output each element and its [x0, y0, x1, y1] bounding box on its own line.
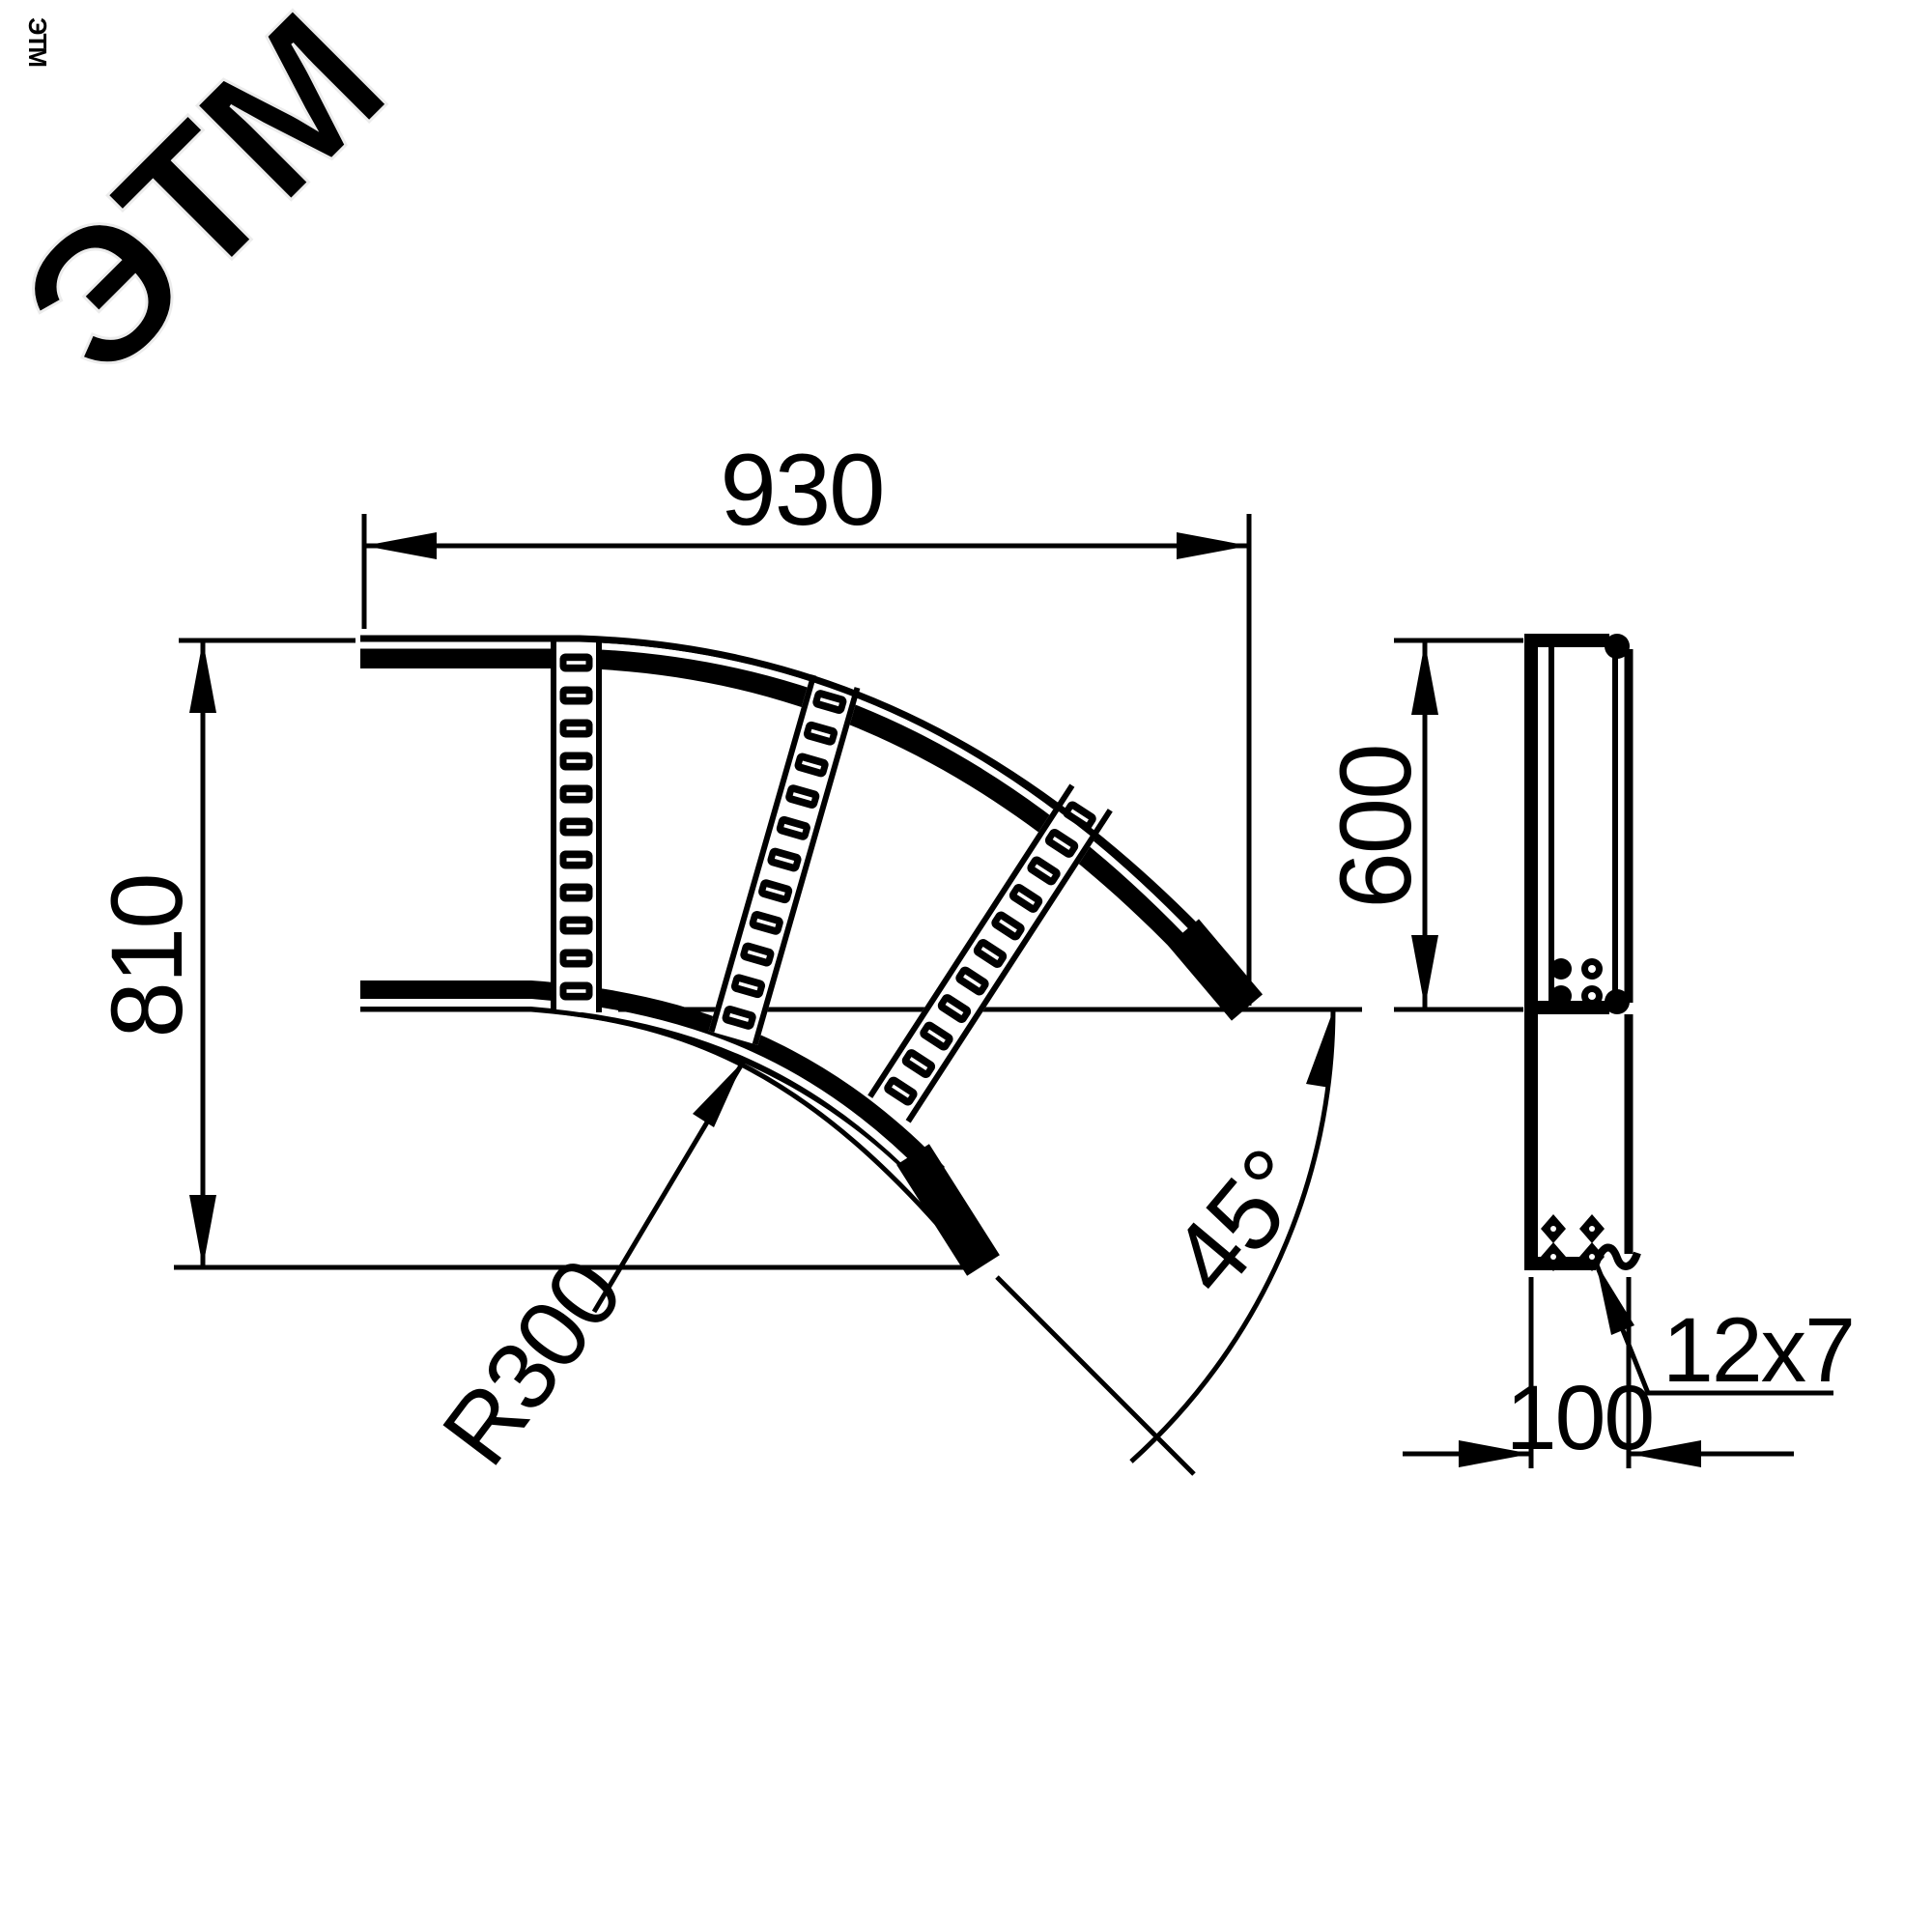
slot-hole: [1579, 1214, 1605, 1243]
dimension-600: 600: [1320, 642, 1438, 1008]
rung-2: [709, 674, 861, 1045]
arrow-left-icon: [364, 532, 437, 559]
rivet-hole-ring: [1581, 958, 1603, 980]
outer-rail-end-cap: [1183, 932, 1247, 1008]
angle-arm-line: [997, 1277, 1194, 1474]
arrow-up-icon: [189, 640, 216, 713]
dim-45-label: 45°: [1150, 1129, 1331, 1315]
dimension-r300: R300: [422, 1061, 744, 1485]
rivet-hole: [1550, 958, 1572, 980]
dim-100-label: 100: [1506, 1367, 1654, 1469]
rivet-hole: [1550, 985, 1572, 1007]
side-view: 600 100 12x7: [1320, 634, 1854, 1469]
profile-lip-bottom: [1605, 989, 1630, 1014]
dim-r300-label: R300: [422, 1241, 643, 1485]
arrow-icon: [1306, 1013, 1332, 1088]
drawing-canvas: ЭТМ ЭТМ 93: [0, 0, 1932, 1932]
plan-view: 930 810 45° R300: [91, 434, 1362, 1485]
arrow-up-icon: [1411, 642, 1438, 715]
arrow-down-icon: [1411, 935, 1438, 1008]
dim-12x7-label: 12x7: [1662, 1299, 1854, 1402]
dimension-45deg: 45°: [997, 1009, 1333, 1474]
rung-1: [551, 641, 602, 1012]
watermark: ЭТМ ЭТМ: [0, 0, 424, 416]
dim-810-label: 810: [91, 874, 204, 1037]
arrow-right-icon: [1177, 532, 1249, 559]
profile-upper-section: [1524, 634, 1630, 1014]
slot-hole: [1541, 1214, 1566, 1243]
watermark-logo-small: ЭТМ: [23, 17, 52, 66]
profile-lower-section: [1524, 1014, 1637, 1271]
arrow-down-icon: [189, 1195, 216, 1267]
technical-drawing: ЭТМ ЭТМ 93: [0, 0, 1932, 1932]
dim-930-label: 930: [720, 434, 883, 547]
rivet-hole-ring: [1581, 985, 1603, 1007]
dim-600-label: 600: [1320, 745, 1433, 908]
arrow-icon: [693, 1061, 744, 1127]
watermark-logo: ЭТМ: [0, 0, 424, 416]
rung-3: [867, 784, 1113, 1123]
